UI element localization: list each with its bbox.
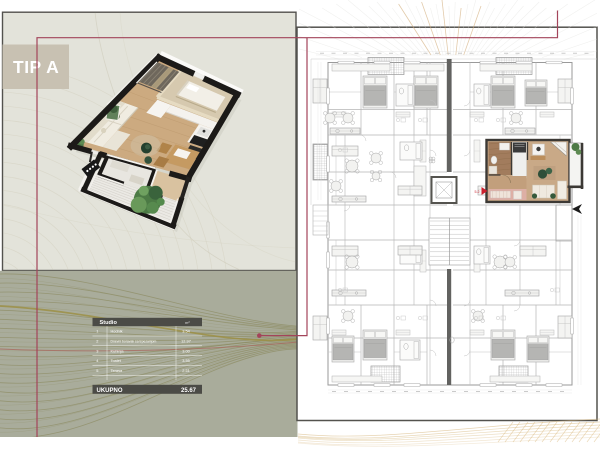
svg-text:Terasa: Terasa (111, 368, 124, 373)
svg-text:5: 5 (96, 368, 98, 373)
svg-text:Dnevni boravak sa trpezarijom: Dnevni boravak sa trpezarijom (111, 339, 157, 343)
svg-text:3.55: 3.55 (182, 358, 190, 363)
svg-text:3.54: 3.54 (182, 329, 190, 334)
svg-text:5.2: 5.2 (475, 190, 480, 194)
svg-text:3.00: 3.00 (182, 348, 190, 353)
svg-text:12.97: 12.97 (181, 338, 191, 343)
svg-text:m²: m² (185, 320, 190, 325)
svg-text:25.67: 25.67 (181, 388, 197, 394)
svg-text:UKUPNO: UKUPNO (97, 388, 123, 394)
svg-text:Kuhinja: Kuhinja (111, 348, 125, 353)
svg-text:Toalet: Toalet (111, 358, 122, 363)
svg-text:2.51: 2.51 (182, 368, 190, 373)
svg-text:3: 3 (96, 348, 98, 353)
svg-text:1: 1 (96, 329, 98, 334)
svg-text:TIP A: TIP A (13, 57, 59, 77)
svg-text:2: 2 (96, 338, 98, 343)
svg-text:Studio: Studio (100, 320, 118, 326)
svg-text:Hodnik: Hodnik (111, 329, 123, 334)
